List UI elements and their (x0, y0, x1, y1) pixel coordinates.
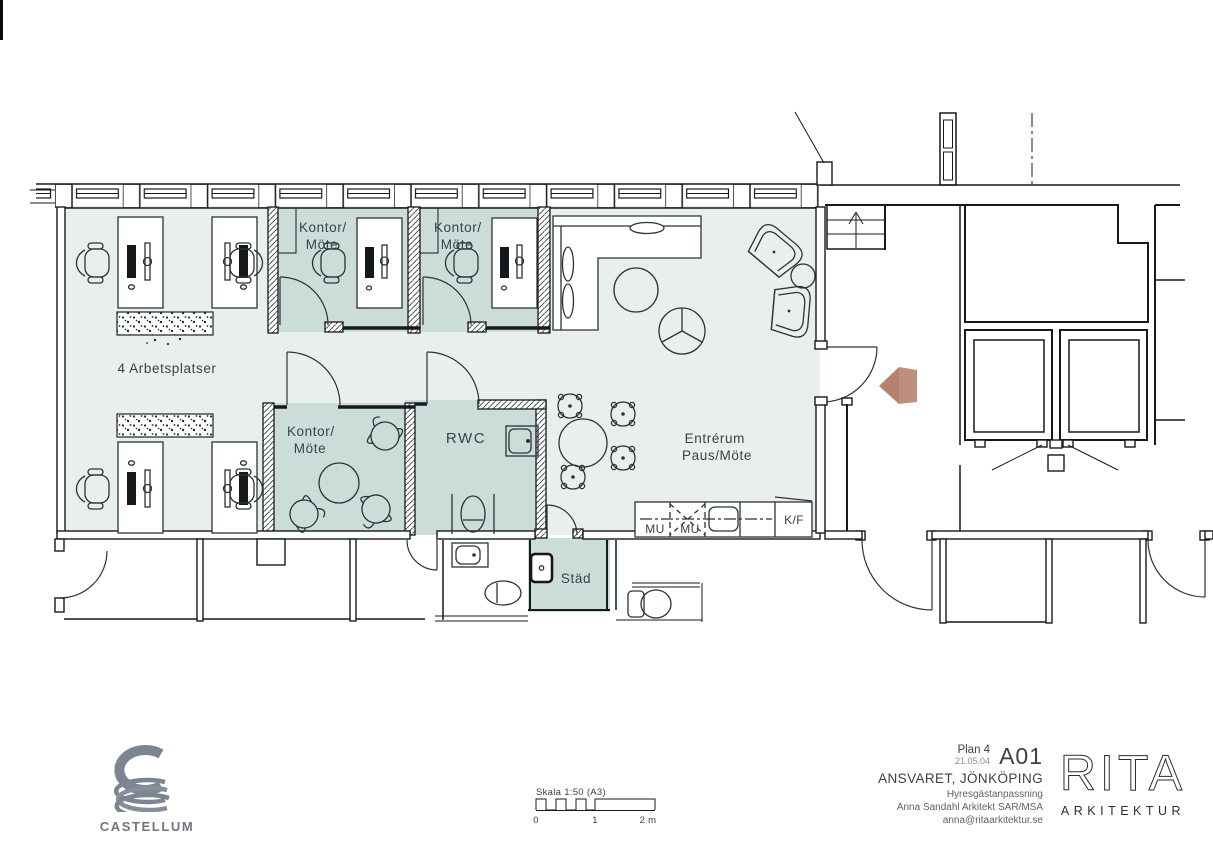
plan-date: 21.05.04 (955, 756, 990, 766)
project-name: ANSVARET, JÖNKÖPING (783, 771, 1043, 786)
label-mu1: MU (645, 522, 664, 536)
floor-plan-drawing: Kontor/ Möte Kontor/ Möte Kontor/ Möte 4… (0, 0, 1213, 854)
window-mullion-column (940, 113, 956, 185)
rita-wordmark: RITA (1060, 746, 1186, 798)
lower-toilet-room (616, 583, 702, 622)
lower-rooms (64, 531, 1213, 623)
lower-wc (435, 540, 528, 621)
plan-number: Plan 4 (955, 744, 990, 756)
shaft-room (965, 205, 1148, 322)
elevator-door (1068, 445, 1118, 470)
stair-up-arrow (849, 212, 856, 224)
scale-title: Skala 1:50 (A3) (536, 787, 606, 798)
project-subtitle: Hyresgästanpassning (783, 789, 1043, 800)
scan-edge-artifact (0, 0, 3, 40)
entrance-arrow (879, 367, 917, 404)
castellum-logo: CASTELLUM (92, 744, 202, 834)
door-entrance (822, 347, 877, 402)
door-left-room (60, 551, 107, 598)
facade-window-wall (30, 184, 820, 208)
upper-right-structure (795, 112, 1180, 205)
architect-email: anna@ritaarkitektur.se (783, 815, 1043, 826)
scale-tick-2: 2 m (640, 815, 657, 826)
elevator-door (992, 445, 1042, 470)
facade-column (817, 162, 832, 185)
door-lower-right (1148, 540, 1205, 597)
scale-bar: Skala 1:50 (A3) 0 1 2 m (533, 787, 656, 826)
door-lower-corridor (862, 540, 932, 610)
stad-sink (531, 554, 552, 582)
label-rwc: RWC (446, 430, 486, 447)
castellum-wordmark: CASTELLUM (92, 819, 202, 834)
toilet-bowl (641, 590, 671, 618)
castellum-icon (99, 744, 195, 812)
floor-plan-sheet: Kontor/ Möte Kontor/ Möte Kontor/ Möte 4… (0, 0, 1213, 854)
rita-logo: RITA ARKITEKTUR (1058, 746, 1188, 818)
rita-wordmark-icon: RITA (1058, 746, 1188, 798)
label-mu2: MU (680, 522, 699, 536)
scale-tick-1: 1 (592, 815, 598, 826)
title-block: Plan 4 21.05.04 A01 ANSVARET, JÖNKÖPING … (783, 744, 1043, 826)
rita-subtitle: ARKITEKTUR (1058, 804, 1188, 818)
scale-tick-0: 0 (533, 815, 539, 826)
wc-toilet (485, 581, 521, 605)
label-kf: K/F (784, 513, 804, 527)
sheet-number: A01 (999, 744, 1043, 768)
elevators (965, 330, 1147, 471)
architect-name: Anna Sandahl Arkitekt SAR/MSA (783, 802, 1043, 813)
label-stad: Städ (561, 571, 591, 586)
door-wc (407, 540, 437, 570)
label-open-office: 4 Arbetsplatser (117, 361, 216, 376)
stairwell (827, 205, 885, 250)
right-boundary (1155, 205, 1185, 445)
